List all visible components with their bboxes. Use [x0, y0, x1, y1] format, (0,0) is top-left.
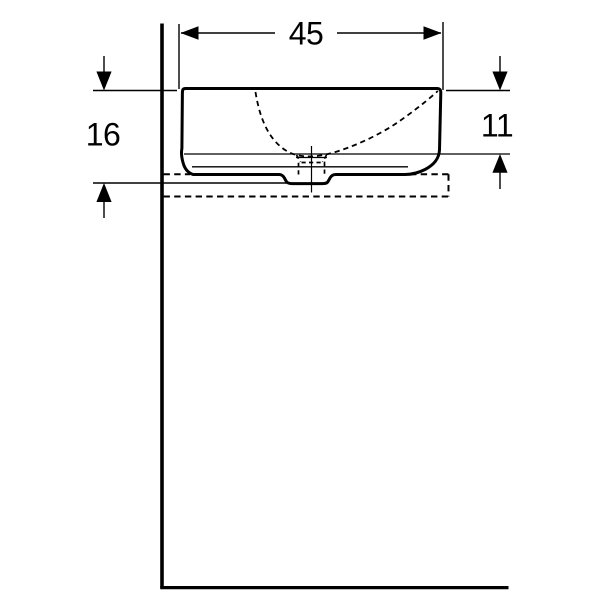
total-height-top-arrowhead	[96, 72, 111, 91]
washbasin-dimension-drawing: 45 16 11	[0, 0, 600, 600]
rim-height-dimension-label: 11	[481, 108, 513, 144]
washbasin-profile	[181, 89, 510, 193]
width-arrowhead-left	[181, 26, 199, 39]
width-arrowhead-right	[424, 26, 442, 39]
total-height-bottom-arrowhead	[96, 183, 111, 202]
width-dimension-label: 45	[289, 16, 324, 52]
dimension-width: 45	[179, 16, 443, 91]
rim-height-top-arrowhead	[492, 72, 507, 91]
technical-drawing-canvas: 45 16 11	[0, 0, 600, 600]
dimension-rim-to-counter: 11	[446, 56, 513, 189]
rim-height-bottom-arrowhead	[492, 154, 507, 173]
total-height-dimension-label: 16	[86, 117, 121, 153]
